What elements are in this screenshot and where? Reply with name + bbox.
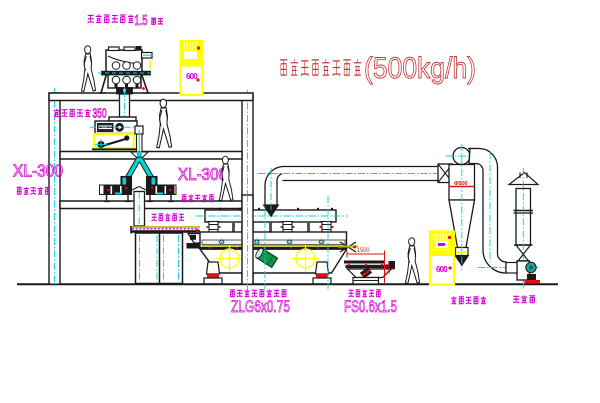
svg-text:600: 600 xyxy=(186,72,198,81)
svg-text:548: 548 xyxy=(385,263,392,274)
svg-text:XL-300: XL-300 xyxy=(178,164,227,184)
svg-text:Φ500: Φ500 xyxy=(454,181,468,187)
svg-text:1.5: 1.5 xyxy=(135,13,148,29)
svg-text:ZLG6x0.75: ZLG6x0.75 xyxy=(231,297,290,316)
svg-text:FS0.6x1.5: FS0.6x1.5 xyxy=(344,297,397,316)
svg-text:(500kg/h): (500kg/h) xyxy=(364,52,476,85)
svg-text:XL-300: XL-300 xyxy=(13,161,63,181)
svg-text:350: 350 xyxy=(93,107,107,121)
svg-text:1500: 1500 xyxy=(357,247,370,254)
svg-text:600: 600 xyxy=(436,265,448,274)
